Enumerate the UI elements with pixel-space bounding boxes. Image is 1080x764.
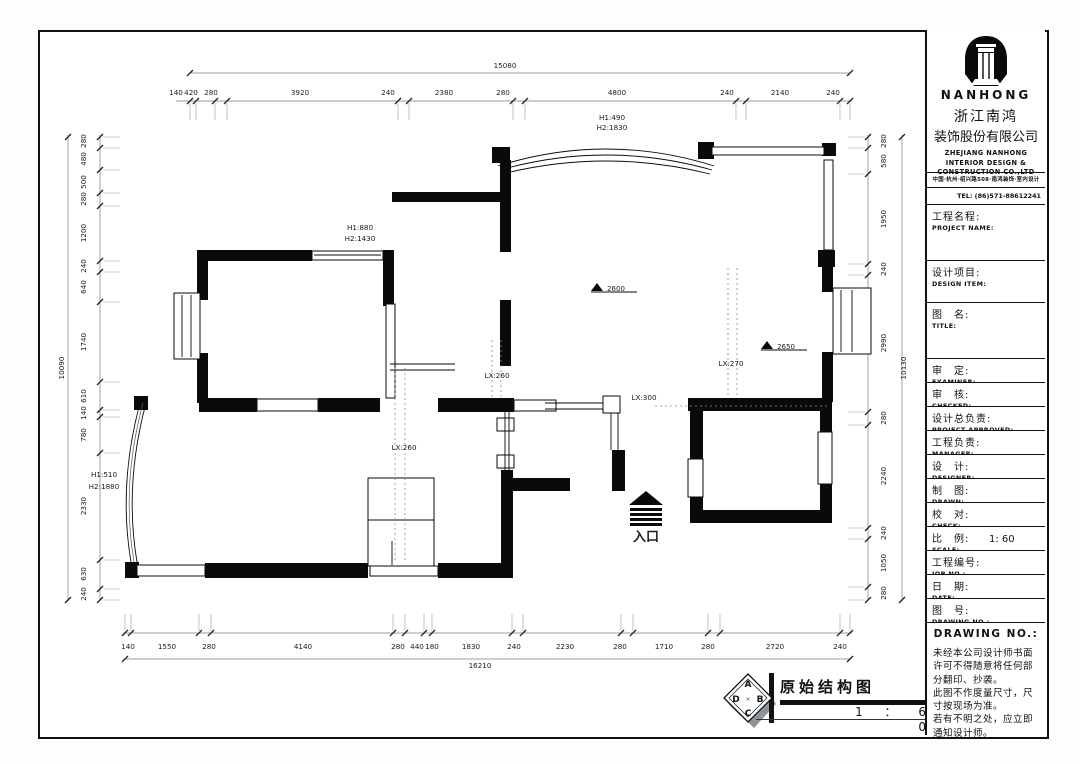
plan-annotation: 780	[79, 428, 88, 442]
plan-annotation: H1:490	[599, 113, 626, 122]
plan-annotation: 280	[879, 134, 888, 148]
plan-annotation: LX:260	[391, 443, 416, 452]
plan-annotation: 240	[79, 259, 88, 273]
plan-annotation: LX:260	[484, 371, 509, 380]
field-scale: 比 例: SCALE: 1: 60	[927, 527, 1045, 551]
plan-annotation: 240	[879, 526, 888, 540]
plan-annotation: H2:1830	[597, 123, 628, 132]
plan-annotation: 2720	[766, 642, 785, 651]
svg-text:D: D	[732, 695, 739, 705]
field-designer: 设 计: DESIGNER:	[927, 455, 1045, 479]
plan-annotation: 4800	[608, 88, 627, 97]
plan-annotation: 180	[425, 642, 439, 651]
plan-annotation: 140	[79, 406, 88, 420]
entrance-arrow-icon	[629, 491, 663, 526]
plan-annotation: 630	[79, 567, 88, 581]
drawing-no-header: DRAWING NO.:	[927, 623, 1045, 645]
drawing-sheet: 1508014042028039202402380280480024021402…	[0, 0, 1080, 764]
nanhong-column-logo-icon	[963, 36, 1009, 86]
plan-annotation: 640	[79, 280, 88, 294]
plan-annotation: 入口	[633, 530, 659, 545]
field-drawing-no: 图 号: DRAWING NO.:	[927, 599, 1045, 623]
plan-annotation: 1830	[462, 642, 481, 651]
field-project-name: 工程名程: PROJECT NAME:	[927, 205, 1045, 261]
field-design-item: 设计项目: DESIGN ITEM:	[927, 261, 1045, 303]
plan-annotation: 280	[613, 642, 627, 651]
field-drawn: 制 图: DRAWN:	[927, 479, 1045, 503]
plan-annotation: 240	[720, 88, 734, 97]
field-project-approved: 设计总负责: PROJECT APPROVED:	[927, 407, 1045, 431]
plan-annotation: 1200	[79, 223, 88, 242]
plan-annotation: 280	[391, 642, 405, 651]
field-check: 校 对: CHECK:	[927, 503, 1045, 527]
plan-annotation: 280	[204, 88, 218, 97]
plan-annotation: 280	[496, 88, 510, 97]
plan-annotation: 240	[833, 642, 847, 651]
plan-annotation: 4140	[294, 642, 313, 651]
plan-annotation: 240	[381, 88, 395, 97]
scale-value: 1: 60	[989, 534, 1015, 545]
company-header: NANHONG 浙江南鸿 装饰股份有限公司 ZHEJIANG NANHONG I…	[927, 30, 1045, 173]
plan-annotation: 1050	[879, 553, 888, 572]
plan-annotation: 500	[79, 175, 88, 189]
plan-annotation: 280	[879, 586, 888, 600]
plan-annotation: 280	[79, 192, 88, 206]
field-manager: 工程负责: MANAGER:	[927, 431, 1045, 455]
plan-annotation: 280	[701, 642, 715, 651]
plan-annotation: 16210	[469, 661, 492, 670]
plan-annotation: LX:270	[718, 359, 743, 368]
plan-annotation: 440	[410, 642, 424, 651]
plan-annotation: H1:510	[91, 470, 118, 479]
plan-annotation: 610	[79, 389, 88, 403]
plan-annotation: 2240	[879, 466, 888, 485]
plan-annotation: H2:1880	[89, 482, 120, 491]
plan-annotation: 420	[184, 88, 198, 97]
title-block: NANHONG 浙江南鸿 装饰股份有限公司 ZHEJIANG NANHONG I…	[925, 30, 1045, 735]
plan-annotation: 2600	[607, 285, 625, 293]
plan-annotation: 10130	[899, 356, 908, 379]
svg-text:B: B	[757, 695, 764, 705]
plan-annotation: 3920	[291, 88, 310, 97]
plan-annotation: 2380	[435, 88, 454, 97]
plan-annotation: 2650	[777, 343, 795, 351]
plan-annotation: 2330	[79, 496, 88, 515]
company-name-cn-1: 浙江南鸿	[927, 106, 1045, 126]
company-address: 中国·杭州·绍兴路508·南鸿装饰·室内设计	[927, 173, 1045, 188]
plan-annotation: 2140	[771, 88, 790, 97]
plan-annotation: 480	[79, 152, 88, 166]
plan-annotation: 580	[879, 154, 888, 168]
plan-annotation: 140	[121, 642, 135, 651]
plan-annotation: 280	[202, 642, 216, 651]
plan-annotation: H1:880	[347, 223, 374, 232]
plan-annotation: 2990	[879, 333, 888, 352]
field-job-no: 工程编号: JOB NO.:	[927, 551, 1045, 575]
plan-annotation: 1740	[79, 332, 88, 351]
plan-annotation: 140	[169, 88, 183, 97]
plan-annotation: 280	[79, 134, 88, 148]
plan-annotation: 240	[879, 262, 888, 276]
plan-annotation: 1710	[655, 642, 674, 651]
field-checked: 审 核: CHECKED:	[927, 383, 1045, 407]
plan-annotation: H2:1430	[345, 234, 376, 243]
brand-name: NANHONG	[927, 88, 1045, 102]
plan-annotation: LX:300	[631, 393, 656, 402]
svg-text:×: ×	[745, 696, 750, 703]
plan-annotation: 1550	[158, 642, 177, 651]
drawing-title-block: 原始结构图	[780, 676, 936, 705]
company-telephone: TEL: (86)571-88612241 88612242	[927, 188, 1045, 205]
svg-text:C: C	[745, 709, 752, 719]
svg-text:A: A	[745, 680, 752, 690]
copyright-notes: 未经本公司设计师书面 许可不得随意将任何部 分翻印、抄袭。 此图不作度量尺寸，尺…	[927, 645, 1045, 740]
plan-annotation: 10090	[57, 356, 66, 379]
plan-annotation: 15080	[494, 61, 517, 70]
plan-annotation: 1950	[879, 209, 888, 228]
field-date: 日 期: DATE:	[927, 575, 1045, 599]
drawing-scale-text: 1 ： 6 0	[835, 703, 935, 734]
plan-annotation: 280	[879, 411, 888, 425]
plan-annotation: 240	[79, 587, 88, 601]
company-name-cn-2: 装饰股份有限公司	[927, 126, 1045, 145]
drawing-title: 原始结构图	[780, 676, 936, 697]
plan-annotation: 240	[826, 88, 840, 97]
plan-annotation: 240	[507, 642, 521, 651]
plan-annotation: 2230	[556, 642, 575, 651]
field-examiner: 审 定: EXAMINER:	[927, 359, 1045, 383]
floor-plan-drawing: 1508014042028039202402380280480024021402…	[0, 0, 1080, 764]
field-title: 图 名: TITLE:	[927, 303, 1045, 359]
